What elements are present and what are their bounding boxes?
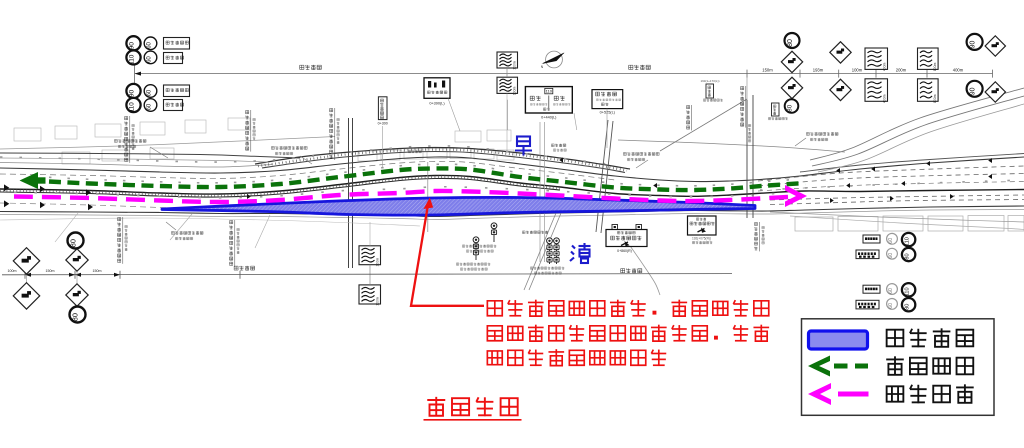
- svg-text:80: 80: [905, 304, 911, 310]
- svg-text:150m: 150m: [93, 269, 102, 273]
- svg-text:200m: 200m: [896, 68, 907, 73]
- svg-text:100m: 100m: [513, 86, 517, 95]
- svg-text:90: 90: [129, 42, 136, 50]
- svg-text:0+300: 0+300: [378, 122, 388, 126]
- svg-text:800m: 800m: [933, 62, 937, 71]
- svg-text:60: 60: [147, 89, 153, 96]
- svg-text:400m: 400m: [883, 94, 887, 103]
- svg-text:100m: 100m: [852, 68, 863, 73]
- svg-text:800m: 800m: [933, 94, 937, 103]
- svg-text:100m: 100m: [8, 269, 17, 273]
- svg-text:60: 60: [888, 238, 894, 244]
- svg-text:90: 90: [970, 40, 977, 48]
- svg-text:193m: 193m: [813, 68, 824, 73]
- svg-text:400m: 400m: [883, 62, 887, 71]
- svg-text:60: 60: [147, 103, 153, 110]
- svg-text:400m: 400m: [953, 68, 964, 73]
- svg-text:90: 90: [129, 89, 136, 97]
- svg-text:60: 60: [888, 253, 894, 259]
- svg-text:60: 60: [147, 41, 153, 48]
- svg-text:60: 60: [888, 288, 894, 294]
- svg-text:110: 110: [546, 89, 553, 94]
- svg-text:0+440(L): 0+440(L): [541, 116, 557, 120]
- svg-text:193(1+170(L)): 193(1+170(L)): [700, 79, 719, 83]
- svg-text:100m: 100m: [513, 61, 517, 70]
- svg-text:80: 80: [69, 239, 78, 247]
- svg-text:80: 80: [787, 39, 794, 47]
- svg-text:100m: 100m: [376, 258, 380, 267]
- svg-text:0+525(L): 0+525(L): [600, 111, 616, 115]
- svg-text:0+390(L): 0+390(L): [429, 102, 445, 106]
- svg-text:0+860(R): 0+860(R): [617, 249, 632, 253]
- svg-text:60: 60: [147, 56, 153, 63]
- svg-text:192(+075(R)): 192(+075(R)): [692, 237, 711, 241]
- svg-text:150m: 150m: [46, 269, 55, 273]
- svg-text:110: 110: [905, 287, 911, 296]
- svg-text:80: 80: [71, 313, 80, 321]
- svg-text:100m: 100m: [376, 297, 380, 306]
- svg-text:110: 110: [129, 54, 136, 64]
- svg-text:110: 110: [129, 102, 136, 112]
- svg-text:80: 80: [905, 253, 911, 259]
- svg-text:110: 110: [905, 237, 911, 246]
- svg-text:80: 80: [787, 104, 794, 112]
- svg-text:150m: 150m: [762, 68, 773, 73]
- svg-text:90: 90: [970, 87, 977, 95]
- svg-text:60: 60: [888, 303, 894, 309]
